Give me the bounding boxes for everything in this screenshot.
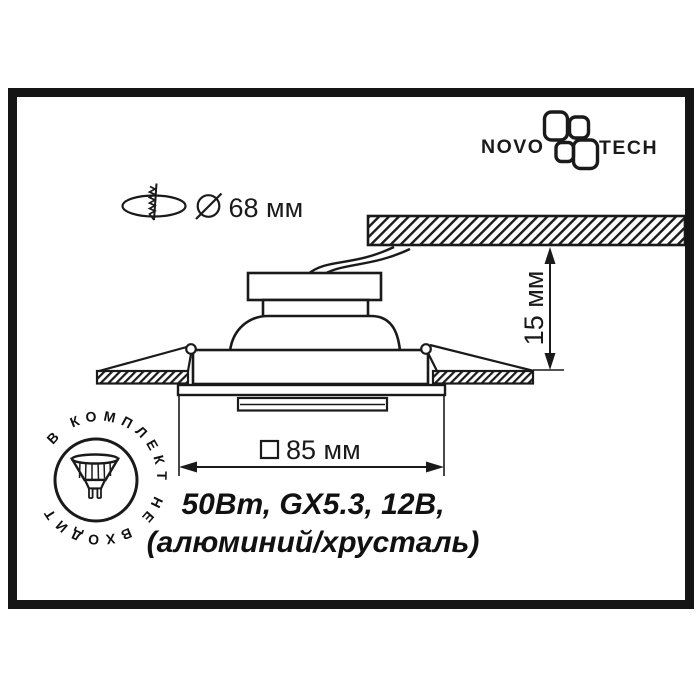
diagram-canvas: 68 мм — [0, 0, 700, 700]
clip-pivot-left — [186, 344, 196, 354]
clip-pivot-right — [421, 344, 431, 354]
square-icon — [261, 441, 278, 458]
terminal-block — [248, 273, 381, 300]
trim-plate — [178, 385, 445, 395]
lamp-pin-right — [97, 489, 101, 499]
cutout-diameter-label: 68 мм — [229, 193, 304, 223]
false-ceiling-right — [433, 371, 533, 384]
novotech-flower-icon — [545, 112, 598, 169]
lamp-housing-dome — [230, 316, 400, 351]
technical-drawing: 68 мм — [0, 0, 700, 700]
depth-dimension: 15 мм — [519, 247, 564, 370]
lamp-neck — [263, 300, 368, 317]
lamp-pin-left — [89, 489, 93, 499]
mounting-ring — [193, 350, 428, 384]
spring-clip-right — [428, 345, 534, 371]
logo-text-tech: TECH — [599, 137, 658, 160]
diameter-icon — [196, 194, 222, 220]
supply-wires — [308, 247, 410, 276]
false-ceiling-left — [97, 371, 188, 384]
spec-text: 50Вт, GX5.3, 12В, (алюминий/хрусталь) — [110, 486, 516, 562]
screw-through-ceiling-icon — [123, 184, 186, 221]
logo-text-novo: NOVO — [481, 136, 544, 159]
spec-line-1: 50Вт, GX5.3, 12В, — [110, 486, 516, 524]
width-label: 85 мм — [286, 435, 361, 465]
spec-line-2: (алюминий/хрусталь) — [110, 524, 516, 562]
spring-clip-left — [99, 345, 194, 371]
arrowhead-up — [545, 247, 556, 264]
depth-label: 15 мм — [519, 271, 549, 346]
arrowhead-left — [179, 462, 197, 473]
fixture-cross-section — [99, 273, 534, 411]
arrowhead-right — [426, 462, 444, 473]
arrowhead-down — [545, 353, 556, 370]
ceiling-slab — [368, 216, 685, 245]
